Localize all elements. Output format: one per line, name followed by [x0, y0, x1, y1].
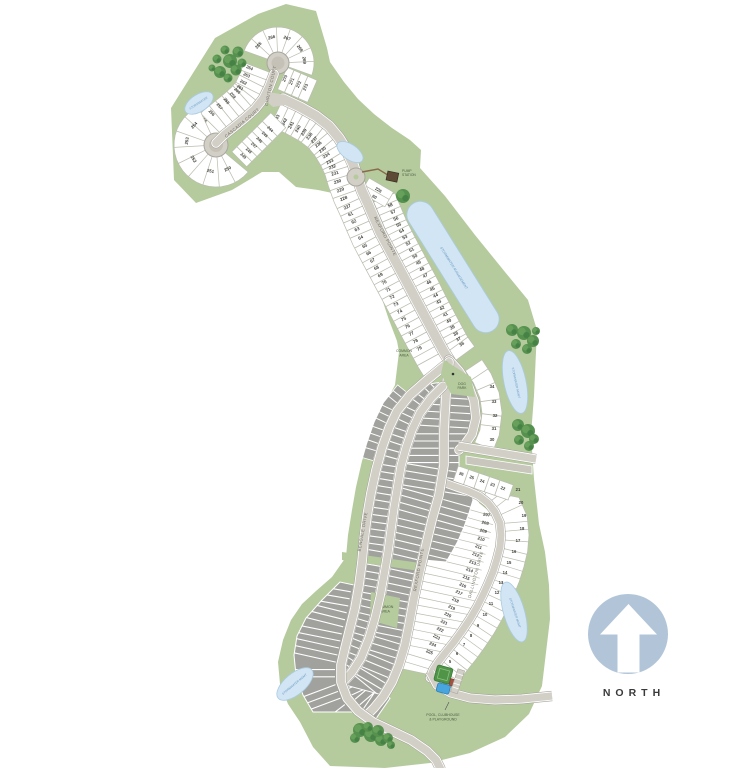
svg-text:32: 32 [493, 413, 498, 418]
svg-text:POOL, CLUBHOUSE: POOL, CLUBHOUSE [426, 713, 460, 717]
svg-text:PARK: PARK [458, 386, 468, 390]
svg-text:269: 269 [302, 56, 308, 64]
svg-text:STATION: STATION [402, 173, 416, 177]
svg-text:21: 21 [516, 487, 521, 492]
svg-text:18: 18 [520, 526, 525, 531]
svg-text:10: 10 [483, 612, 488, 617]
svg-text:11: 11 [489, 601, 494, 606]
svg-text:17: 17 [516, 538, 521, 543]
svg-text:16: 16 [512, 549, 517, 554]
svg-text:15: 15 [507, 560, 512, 565]
svg-text:14: 14 [503, 570, 508, 575]
svg-text:12: 12 [495, 590, 500, 595]
svg-text:33: 33 [492, 399, 497, 404]
svg-text:& PLAYGROUND: & PLAYGROUND [429, 718, 457, 722]
svg-text:AREA: AREA [399, 354, 409, 358]
svg-text:NORTH: NORTH [603, 687, 665, 699]
svg-text:34: 34 [490, 384, 495, 389]
svg-text:31: 31 [492, 426, 497, 431]
svg-text:30: 30 [490, 437, 495, 442]
svg-text:20: 20 [519, 500, 524, 505]
svg-text:19: 19 [522, 513, 527, 518]
svg-text:COMMON: COMMON [396, 349, 412, 353]
